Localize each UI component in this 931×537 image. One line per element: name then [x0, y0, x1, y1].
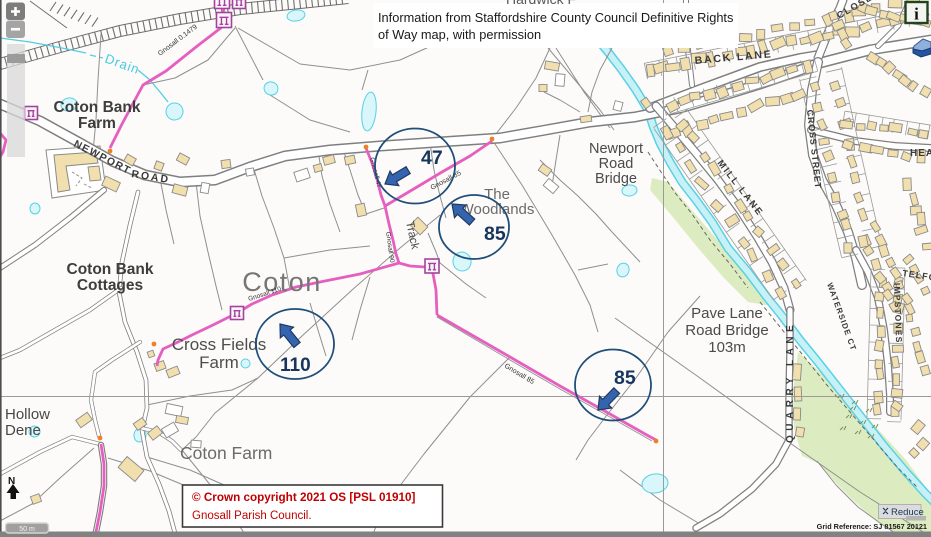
- svg-text:47: 47: [421, 147, 443, 169]
- svg-text:103m: 103m: [708, 339, 746, 356]
- svg-text:i: i: [914, 5, 919, 24]
- svg-text:110: 110: [280, 355, 311, 376]
- svg-text:Road: Road: [599, 156, 634, 172]
- svg-text:Newport: Newport: [589, 141, 643, 157]
- svg-text:Dene: Dene: [5, 422, 41, 439]
- svg-text:Bridge: Bridge: [595, 171, 637, 187]
- svg-text:Hardwick F: Hardwick F: [506, 0, 576, 7]
- svg-text:85: 85: [484, 223, 506, 245]
- svg-text:Coton Farm: Coton Farm: [180, 443, 272, 463]
- svg-text:Road Bridge: Road Bridge: [685, 322, 768, 339]
- svg-text:Cottages: Cottages: [77, 277, 143, 294]
- svg-text:IMPSTONES: IMPSTONES: [892, 283, 904, 344]
- svg-text:© Crown copyright 2021 OS [PSL: © Crown copyright 2021 OS [PSL 01910]: [192, 491, 415, 504]
- svg-text:Pave Lane: Pave Lane: [691, 305, 763, 322]
- svg-text:Cross Fields: Cross Fields: [172, 335, 266, 354]
- svg-text:Gnosall Parish Council.: Gnosall Parish Council.: [192, 510, 312, 522]
- svg-text:HEATH: HEATH: [910, 148, 931, 159]
- svg-text:N: N: [8, 476, 15, 487]
- svg-text:Coton: Coton: [242, 267, 322, 297]
- svg-text:Information from Staffordshire: Information from Staffordshire County Co…: [378, 10, 733, 25]
- svg-text:Farm: Farm: [78, 115, 116, 132]
- svg-text:Grid Reference: SJ 81567 20121: Grid Reference: SJ 81567 20121: [817, 522, 927, 531]
- svg-text:50 m: 50 m: [19, 526, 35, 533]
- svg-text:Farm: Farm: [199, 353, 239, 372]
- svg-text:Coton Bank: Coton Bank: [54, 99, 141, 116]
- svg-text:QUARRY LANE: QUARRY LANE: [785, 321, 796, 443]
- svg-text:of Way map, with permission: of Way map, with permission: [378, 27, 541, 42]
- svg-text:85: 85: [614, 367, 636, 389]
- svg-text:Coton Bank: Coton Bank: [67, 261, 154, 278]
- svg-text:Hollow: Hollow: [5, 406, 50, 423]
